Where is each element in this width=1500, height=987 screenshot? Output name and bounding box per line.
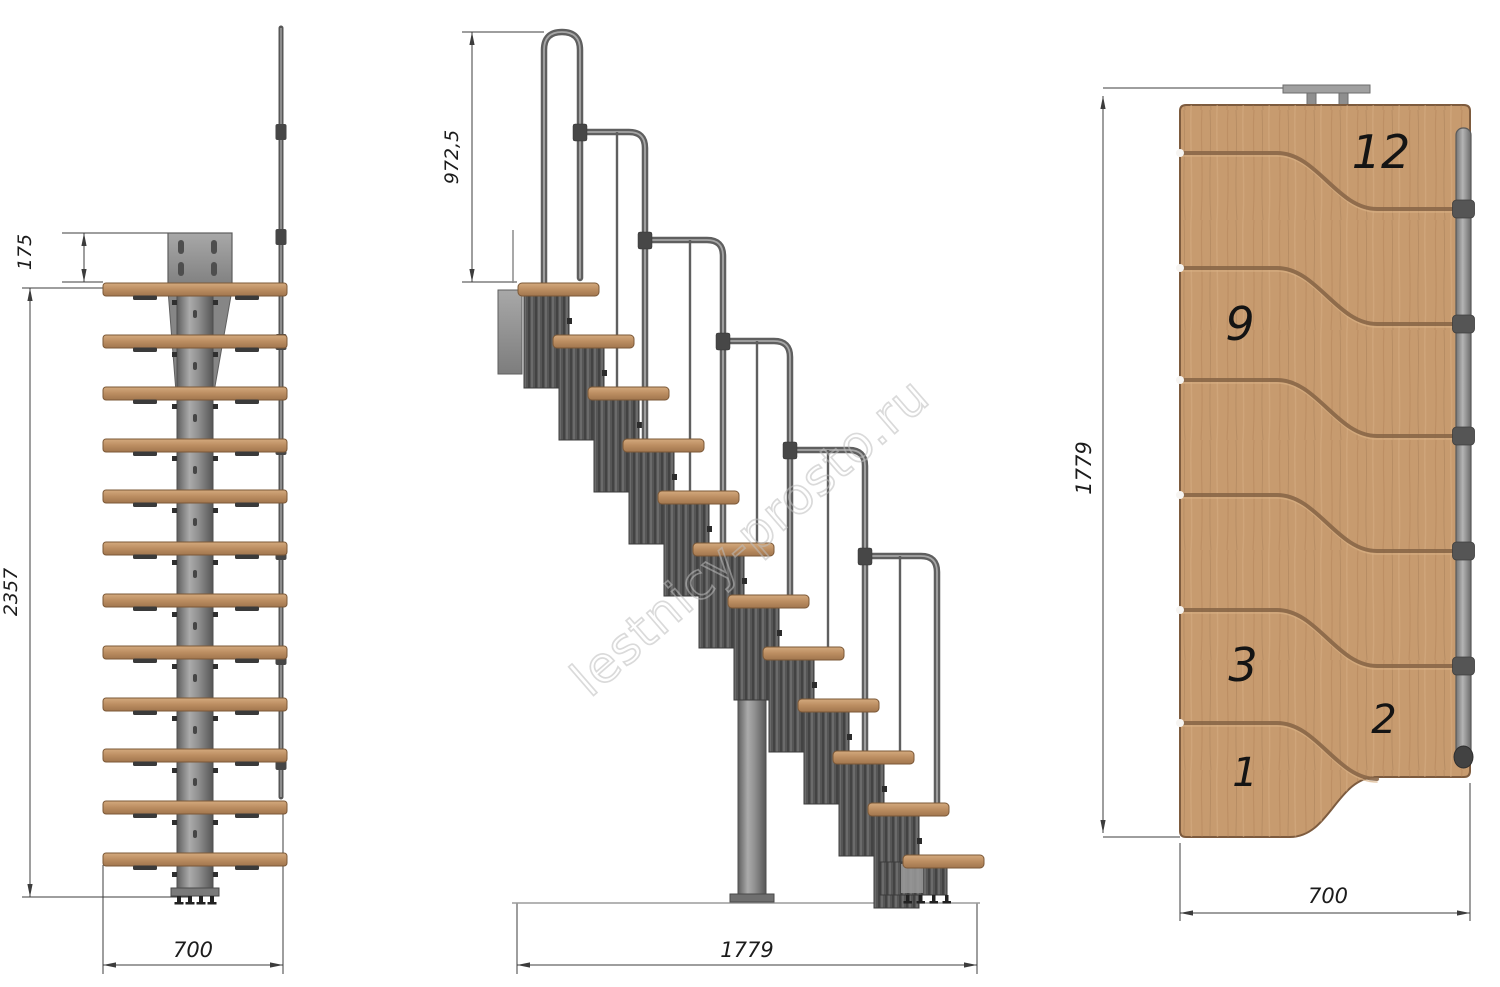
side-elevation-view: 972,5 1779 <box>441 32 984 974</box>
dim-label-175: 175 <box>14 234 36 270</box>
dim-label-1779-plan: 1779 <box>1072 441 1096 494</box>
handrail-hoop <box>544 32 580 284</box>
dim-label-972-5: 972,5 <box>441 130 463 184</box>
plate-slot <box>211 262 217 276</box>
column-base-flange <box>171 888 219 896</box>
front-dim-offset: 175 <box>14 233 168 282</box>
plan-tread-panel: 12 9 3 2 1 <box>1176 105 1470 837</box>
plan-dim-length: 1779 <box>1072 96 1180 837</box>
technical-drawing-page: 175 2357 700 <box>0 0 1500 987</box>
plate-slot <box>178 240 184 254</box>
rail-end-cap <box>1454 746 1473 768</box>
front-handrail-post <box>276 28 287 797</box>
staircase-drawing: 175 2357 700 <box>0 0 1500 987</box>
plate-slot <box>178 262 184 276</box>
wall-bracket <box>498 290 522 374</box>
step-number-2: 2 <box>1371 697 1396 743</box>
column-feet <box>175 896 217 905</box>
dim-label-700-plan: 700 <box>1308 884 1348 908</box>
step-number-3: 3 <box>1228 638 1257 692</box>
side-dim-length: 1779 <box>517 903 977 974</box>
dim-label-700-front: 700 <box>173 938 213 962</box>
step-number-12: 12 <box>1352 125 1411 179</box>
step-number-9: 9 <box>1225 297 1254 351</box>
dim-label-1779-side: 1779 <box>720 938 773 962</box>
plan-handrail <box>1453 128 1475 768</box>
mounting-plate <box>168 233 232 290</box>
step-number-1: 1 <box>1232 750 1257 796</box>
dim-label-2357: 2357 <box>0 568 22 616</box>
plan-wall-bracket <box>1283 85 1370 106</box>
plate-slot <box>211 240 217 254</box>
side-dim-rail-height: 972,5 <box>441 32 544 282</box>
top-plan-view: 12 9 3 2 1 1779 <box>1072 85 1475 921</box>
front-elevation-view: 175 2357 700 <box>0 28 287 974</box>
